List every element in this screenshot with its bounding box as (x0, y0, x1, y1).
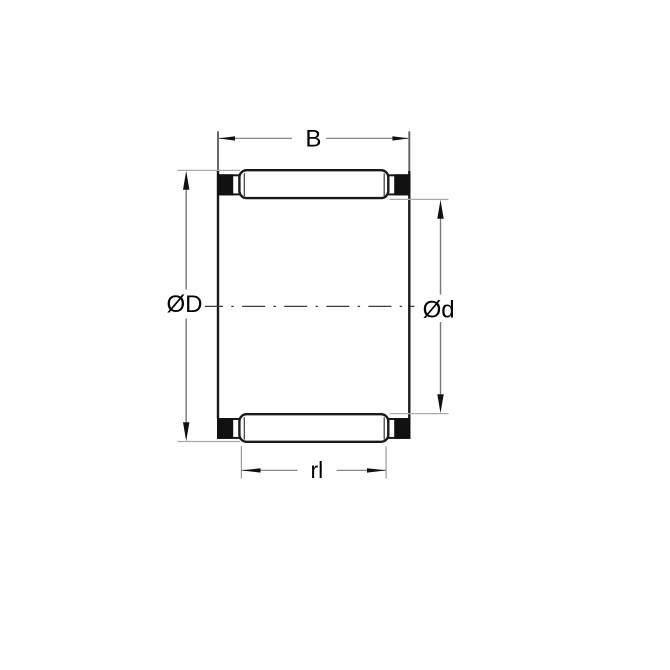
svg-text:ØD: ØD (167, 291, 203, 318)
svg-text:B: B (305, 126, 321, 153)
svg-text:Ød: Ød (423, 297, 455, 324)
svg-text:rl: rl (311, 457, 324, 483)
